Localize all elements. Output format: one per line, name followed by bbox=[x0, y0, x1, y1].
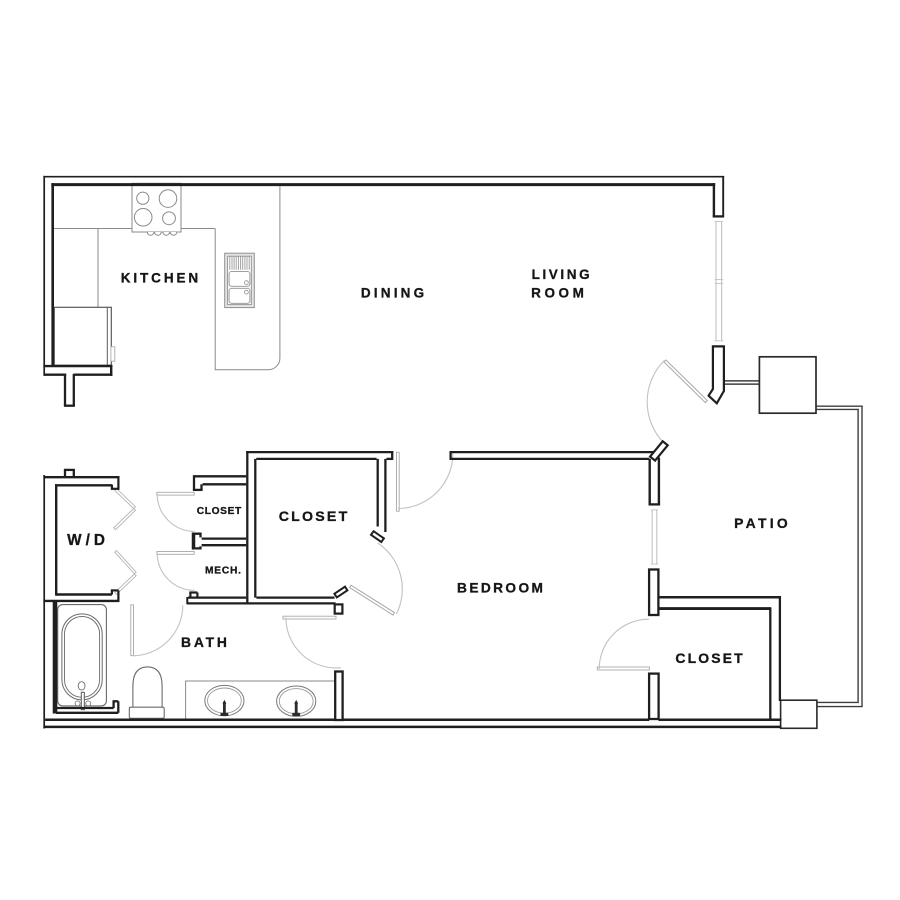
svg-text:LIVING: LIVING bbox=[532, 267, 593, 282]
svg-text:CLOSET: CLOSET bbox=[675, 650, 744, 666]
svg-text:CLOSET: CLOSET bbox=[279, 509, 350, 525]
svg-text:BEDROOM: BEDROOM bbox=[457, 581, 545, 596]
svg-text:DINING: DINING bbox=[361, 285, 427, 300]
svg-text:BATH: BATH bbox=[181, 634, 230, 650]
svg-text:KITCHEN: KITCHEN bbox=[121, 271, 201, 286]
svg-text:PATIO: PATIO bbox=[734, 515, 791, 531]
svg-text:W/D: W/D bbox=[67, 532, 109, 549]
svg-text:MECH.: MECH. bbox=[205, 566, 242, 577]
svg-text:CLOSET: CLOSET bbox=[197, 506, 242, 517]
svg-text:ROOM: ROOM bbox=[531, 285, 587, 300]
